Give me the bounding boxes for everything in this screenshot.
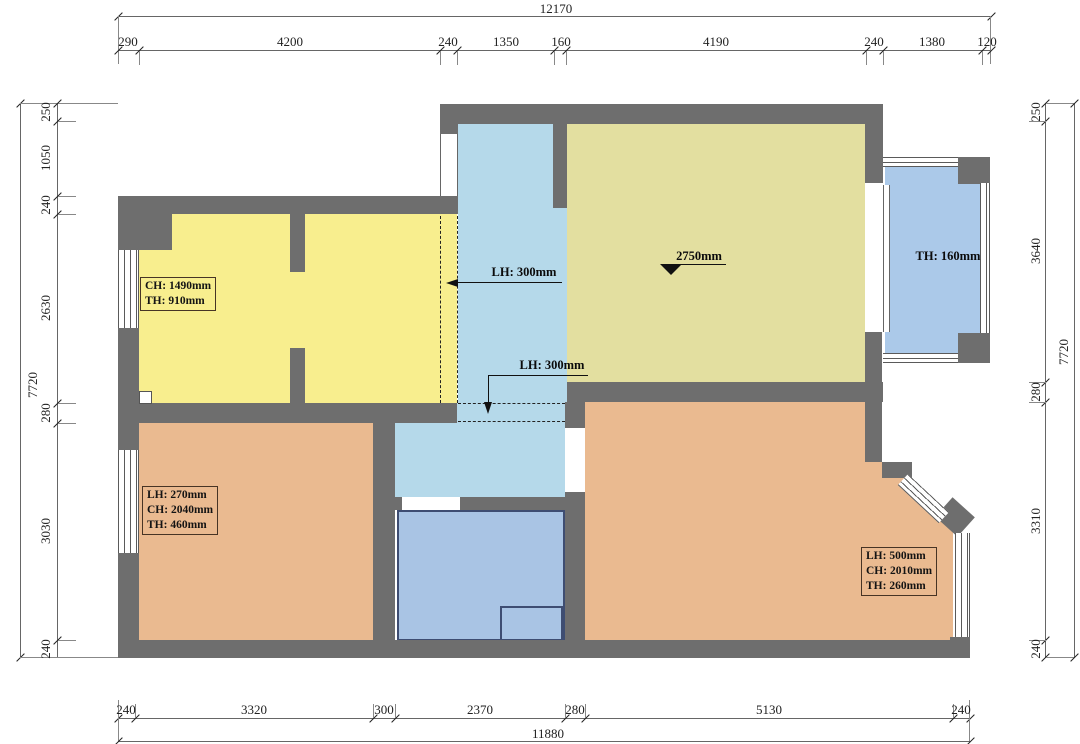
dim-line-right-overall [1074, 103, 1075, 658]
wall-bedroom1-top [118, 196, 458, 214]
dim-left-seg: 250 [38, 102, 54, 122]
window-left-bedroom2 [118, 450, 139, 553]
wall-bath-top-right [460, 497, 565, 510]
wall-bath-top-left [395, 497, 402, 510]
ext-line [1046, 103, 1075, 104]
dim-top-seg: 4200 [277, 34, 303, 50]
room-fill-hallway-lower [395, 423, 565, 497]
dim-right-seg: 250 [1028, 102, 1044, 122]
dim-bottom-seg: 5130 [756, 702, 782, 718]
ext-line [58, 403, 76, 404]
wall-living-bottom [567, 382, 883, 402]
ext-line [20, 657, 118, 658]
dashed-line-hall-west-1 [440, 216, 441, 403]
wall-left-middle [118, 328, 139, 450]
floor-plan: CH: 1490mm TH: 910mm LH: 270mm CH: 2040m… [0, 0, 1080, 744]
dim-right-total: 7720 [1056, 339, 1072, 365]
label-line: TH: 460mm [147, 518, 213, 533]
entry-door-opening [440, 134, 458, 196]
dim-top-seg: 290 [118, 34, 138, 50]
label-line: LH: 270mm [147, 488, 213, 503]
window-left-bedroom1 [118, 250, 139, 328]
label-living-level: 2750mm [676, 249, 722, 264]
room-fill-hallway-dash-zone [457, 403, 565, 423]
wall-bedroom2-right [373, 423, 395, 640]
dim-top-seg: 160 [551, 34, 571, 50]
wall-living-right-upper [865, 124, 883, 183]
label-line: TH: 260mm [866, 579, 932, 594]
dim-left-total: 7720 [25, 372, 41, 398]
wall-stub-upper [290, 214, 305, 272]
wall-balcony-pier-top [958, 157, 990, 184]
label-line: LH: 500mm [866, 549, 932, 564]
wall-bottom-main [118, 640, 970, 658]
leader-hall-upper [452, 282, 562, 283]
ext-line [457, 51, 458, 65]
ext-line [554, 51, 555, 65]
wall-bedroom3-left-upper [565, 402, 585, 428]
wall-bedroom3-left-lower [565, 492, 585, 640]
wall-left-lower [118, 553, 139, 641]
level-marker-triangle [660, 264, 682, 275]
arrowhead-hall-lower [484, 402, 492, 414]
dashed-line-hall-south-2 [458, 421, 565, 422]
window-bay-right [955, 533, 970, 637]
ext-line [395, 704, 396, 718]
label-line: CH: 2040mm [147, 503, 213, 518]
label-line: CH: 2010mm [866, 564, 932, 579]
bathroom-shower-zone [500, 606, 563, 641]
ext-line [440, 51, 441, 65]
window-balcony-right [980, 183, 990, 333]
label-box-bottom-right-bedroom: LH: 500mm CH: 2010mm TH: 260mm [861, 547, 937, 596]
ext-line [982, 51, 983, 65]
dim-bottom-seg: 240 [116, 702, 136, 718]
wall-bedroom1-bottom [139, 403, 457, 423]
label-box-bottom-left-bedroom: LH: 270mm CH: 2040mm TH: 460mm [142, 486, 218, 535]
label-line: TH: 910mm [145, 294, 211, 309]
room-fill-bottom-right-bedroom [585, 402, 953, 640]
dim-bottom-seg: 2370 [467, 702, 493, 718]
ext-line [20, 103, 118, 104]
balcony-door-frame [883, 185, 890, 332]
wall-entry-pier [440, 124, 458, 134]
label-balcony: TH: 160mm [916, 249, 981, 264]
room-fill-hallway-upper [458, 124, 553, 208]
label-hall-upper: LH: 300mm [492, 265, 557, 280]
room-fill-hallway-mid [458, 208, 567, 403]
label-line: CH: 1490mm [145, 279, 211, 294]
ext-line [58, 196, 76, 197]
label-box-top-left-bedroom: CH: 1490mm TH: 910mm [140, 277, 216, 311]
wall-notch-square [139, 391, 152, 404]
ext-line [58, 640, 76, 641]
wall-balcony-pier-bottom [958, 333, 990, 363]
ext-line [58, 214, 76, 215]
window-balcony-top [883, 157, 958, 167]
dim-line-left-segments [57, 103, 58, 658]
dim-top-seg: 120 [977, 34, 997, 50]
dim-top-seg: 240 [864, 34, 884, 50]
dim-bottom-seg: 3320 [241, 702, 267, 718]
dim-bottom-seg: 300 [374, 702, 394, 718]
dim-bottom-total: 11880 [532, 726, 564, 742]
ext-line [1046, 657, 1075, 658]
dim-right-seg: 3640 [1028, 238, 1044, 264]
dashed-line-hall-south-1 [458, 403, 565, 404]
dim-left-seg: 240 [38, 195, 54, 215]
arrowhead-hall-upper [446, 279, 458, 287]
dim-top-total: 12170 [540, 1, 573, 17]
wall-hall-living-stub [553, 124, 567, 208]
dim-right-seg: 280 [1028, 382, 1044, 402]
dim-right-seg: 3310 [1028, 508, 1044, 534]
ext-line [58, 121, 76, 122]
dim-left-seg: 240 [38, 639, 54, 659]
dim-top-seg: 1380 [919, 34, 945, 50]
leader-hall-lower-v [488, 375, 489, 404]
ext-line [566, 51, 567, 65]
ext-line [1029, 402, 1046, 403]
leader-hall-lower-h [488, 375, 588, 376]
dim-line-bottom-segments [118, 718, 970, 719]
dim-bottom-seg: 280 [565, 702, 585, 718]
ext-line [139, 51, 140, 65]
window-balcony-bottom [883, 353, 958, 363]
wall-top-main [440, 104, 883, 124]
ext-line [585, 704, 586, 718]
ext-line [866, 51, 867, 65]
dim-left-seg: 1050 [38, 145, 54, 171]
dim-top-seg: 4190 [703, 34, 729, 50]
wall-stub-lower [290, 348, 305, 403]
ext-line [58, 423, 76, 424]
wall-bay-bottom-pier [950, 637, 970, 658]
dim-bottom-seg: 240 [951, 702, 971, 718]
dim-left-seg: 3030 [38, 518, 54, 544]
dim-left-seg: 280 [38, 403, 54, 423]
dashed-line-hall-west-2 [457, 216, 458, 403]
ext-line [883, 51, 884, 65]
dim-line-left-overall [20, 103, 21, 658]
wall-corner-pier-topleft [118, 214, 172, 250]
dim-top-seg: 1350 [493, 34, 519, 50]
dim-left-seg: 2630 [38, 295, 54, 321]
dim-top-seg: 240 [438, 34, 458, 50]
dim-right-seg: 240 [1028, 639, 1044, 659]
label-hall-lower: LH: 300mm [520, 358, 585, 373]
